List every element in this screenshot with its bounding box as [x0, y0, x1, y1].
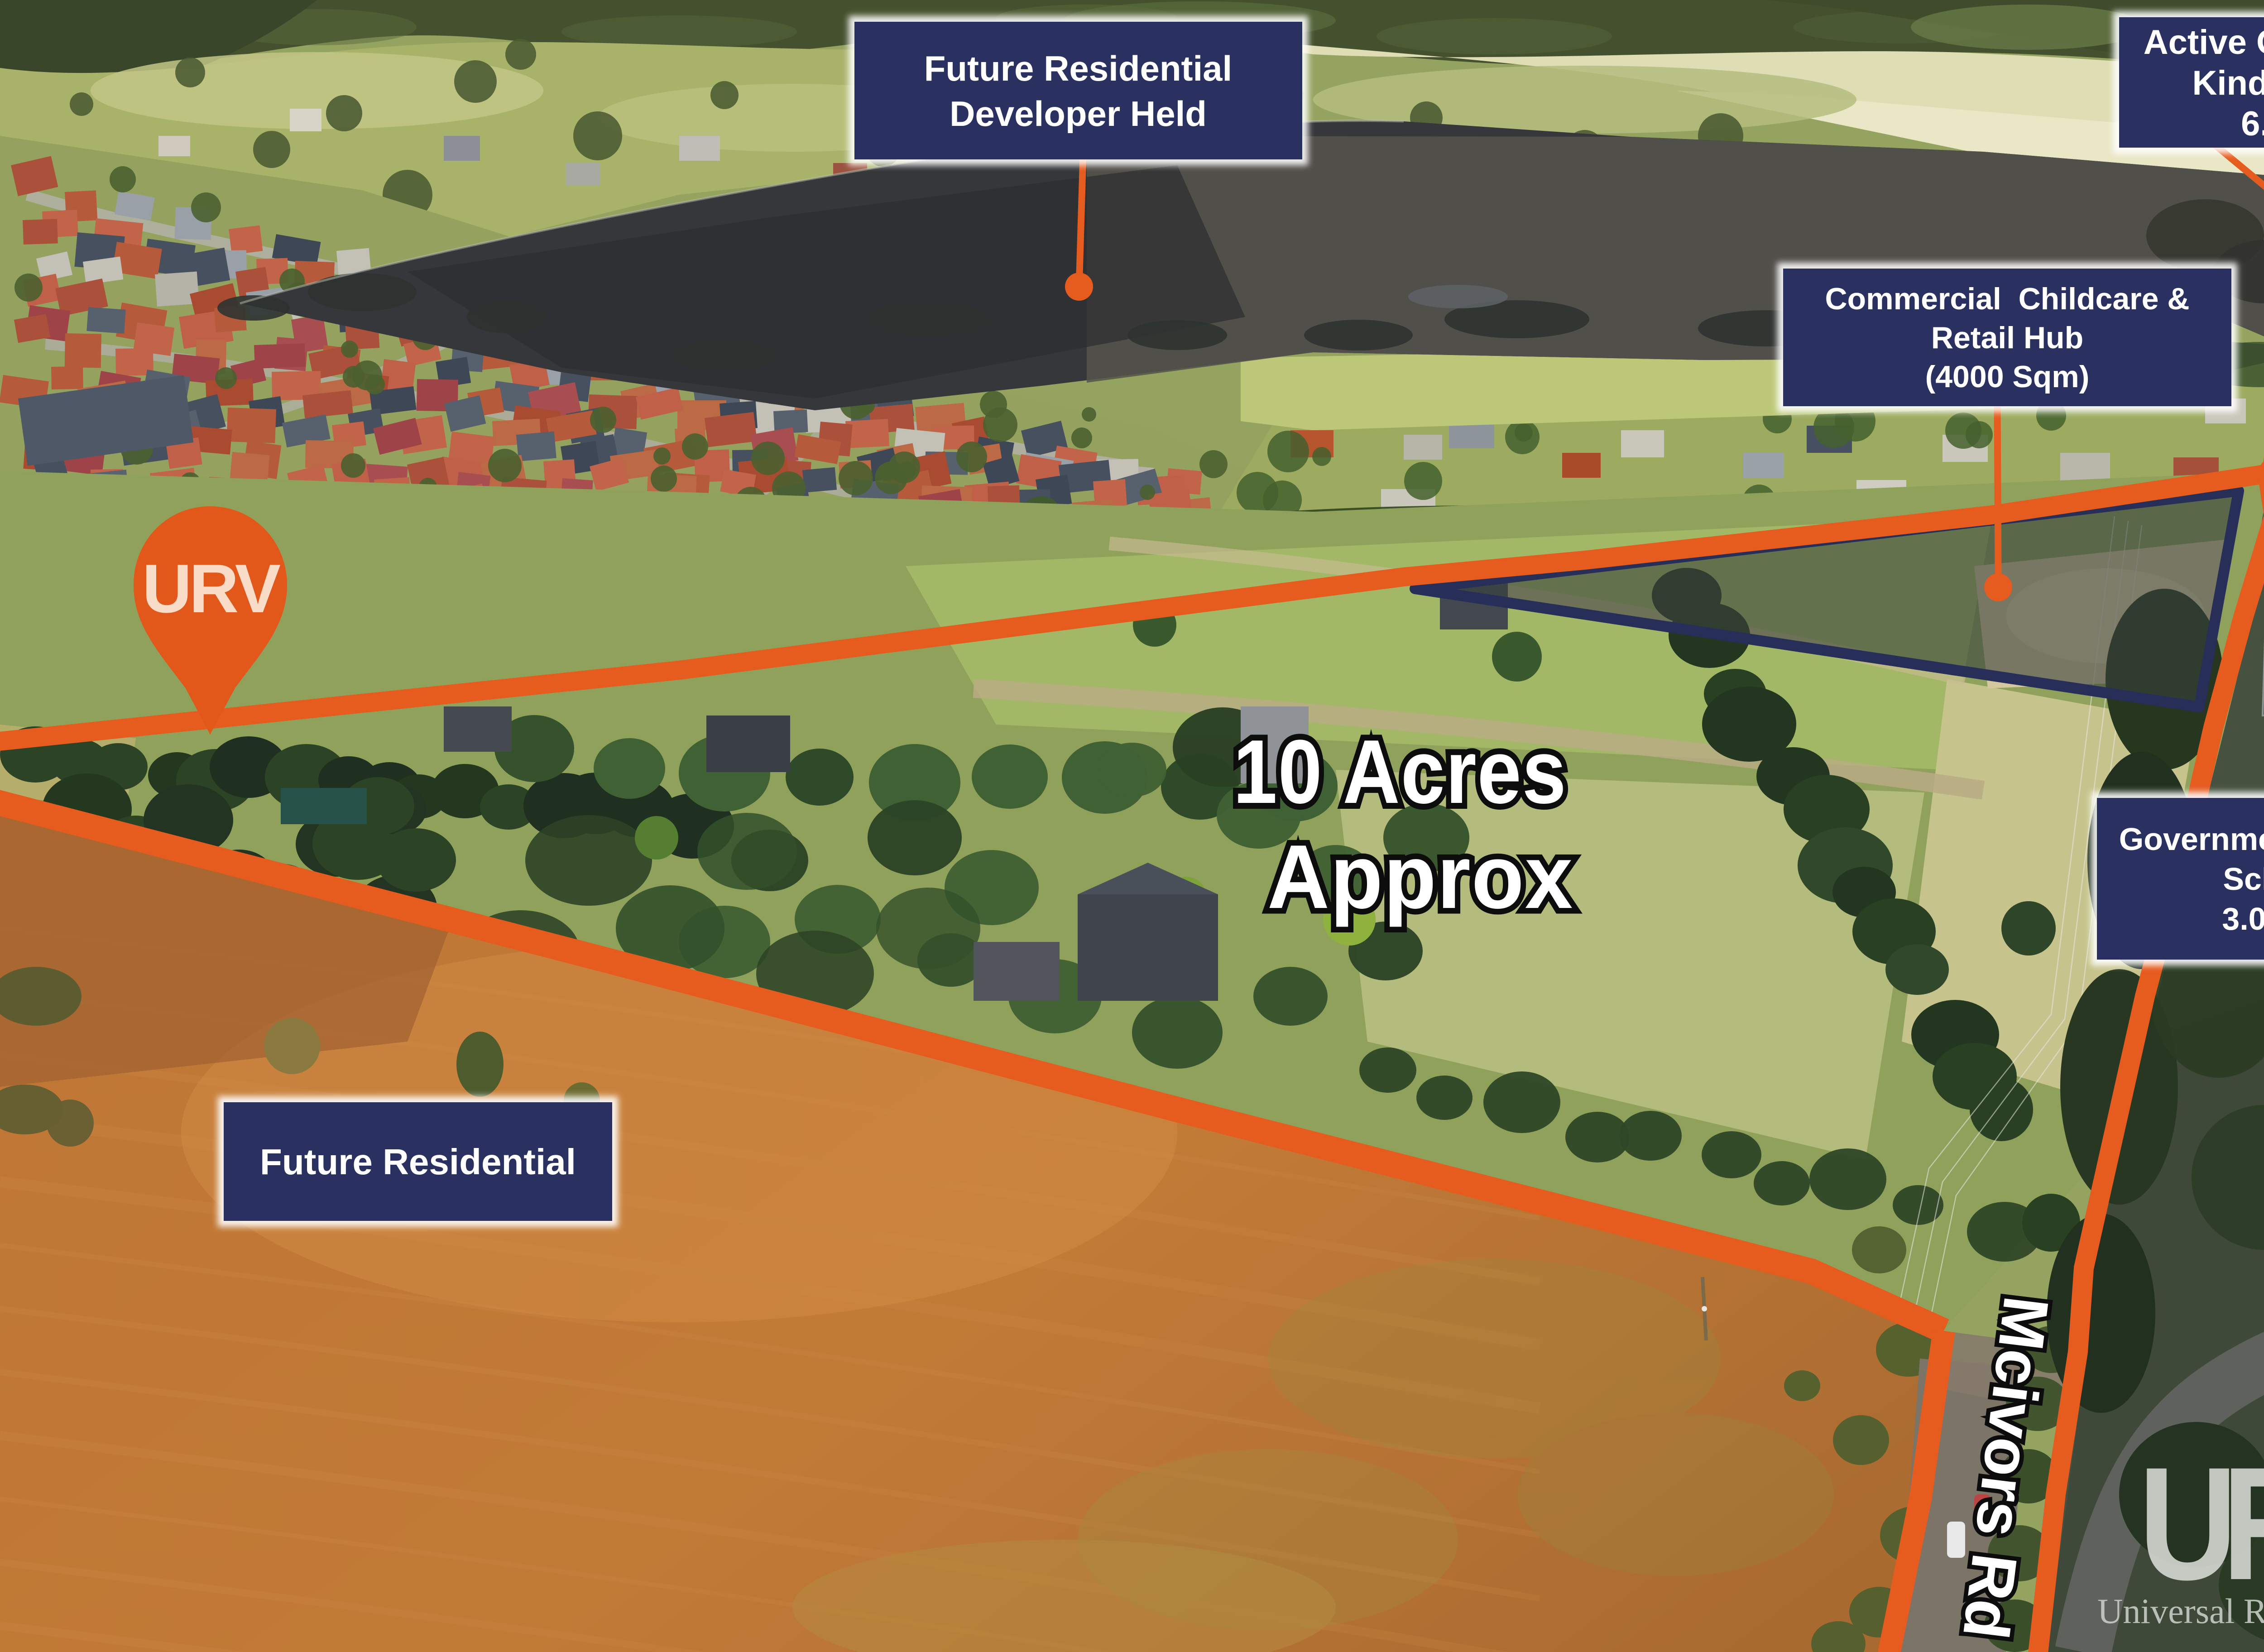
svg-text:6.05 ha: 6.05 ha	[2241, 105, 2264, 143]
svg-text:Approx: Approx	[1267, 826, 1573, 928]
svg-text:Commercial Childcare &: Commercial Childcare &	[1825, 282, 2190, 316]
svg-text:Future Residential: Future Residential	[260, 1142, 576, 1182]
svg-text:URV: URV	[142, 550, 281, 627]
svg-text:Developer Held: Developer Held	[950, 94, 1207, 134]
svg-text:Active Open Space: Active Open Space	[2144, 23, 2264, 62]
svg-text:Retail Hub: Retail Hub	[1931, 321, 2083, 355]
svg-text:URV: URV	[2139, 1434, 2264, 1614]
svg-text:Future Residential: Future Residential	[924, 48, 1232, 88]
svg-text:Universal Real Estate Vic: Universal Real Estate Vic	[2097, 1591, 2264, 1631]
svg-text:School: School	[2223, 861, 2264, 897]
svg-text:Kindergarten: Kindergarten	[2192, 64, 2264, 102]
svg-text:10 Acres: 10 Acres	[1233, 721, 1567, 822]
svg-text:(4000 Sqm): (4000 Sqm)	[1925, 360, 2090, 394]
svg-text:3.04 ha: 3.04 ha	[2222, 901, 2264, 936]
svg-text:Government Primary: Government Primary	[2119, 821, 2264, 857]
